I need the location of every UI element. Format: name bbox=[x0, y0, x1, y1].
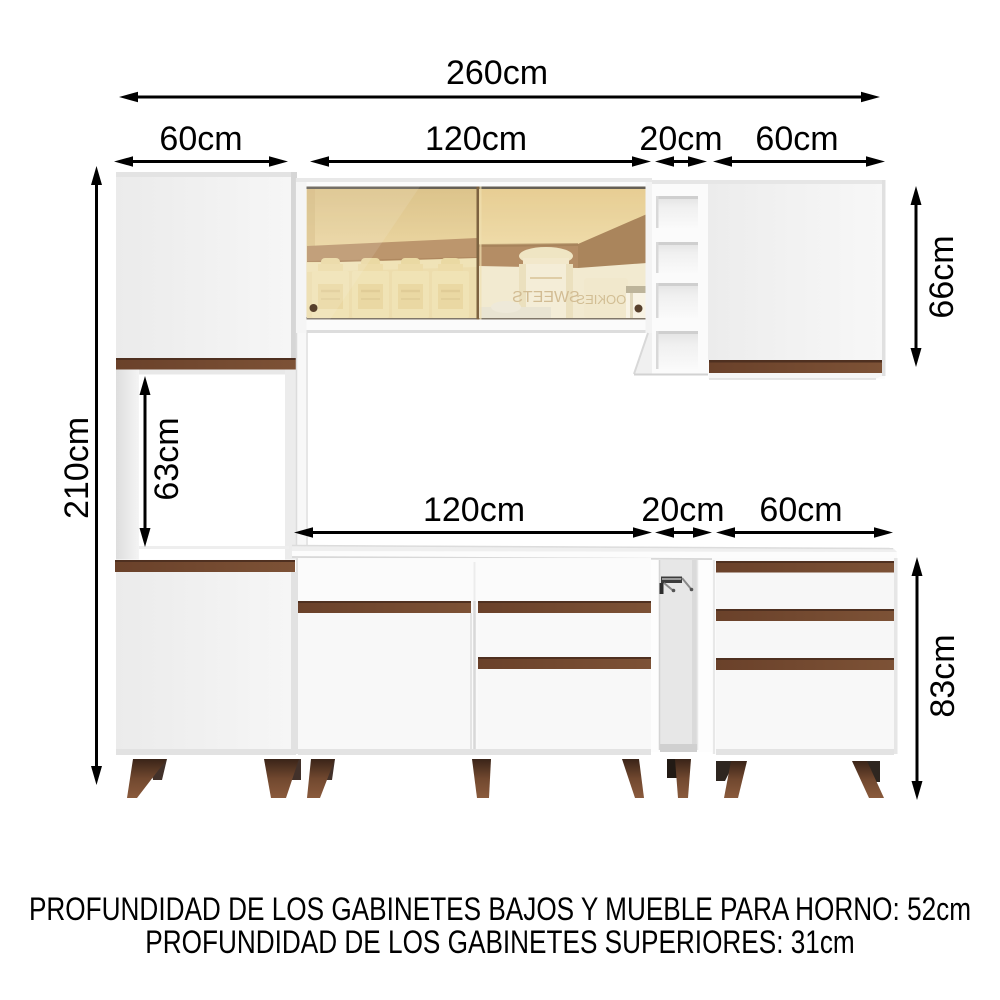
svg-text:120cm: 120cm bbox=[425, 120, 527, 158]
svg-text:210cm: 210cm bbox=[58, 417, 96, 519]
svg-text:PROFUNDIDAD DE LOS GABINETES S: PROFUNDIDAD DE LOS GABINETES SUPERIORES:… bbox=[145, 926, 854, 961]
svg-text:63cm: 63cm bbox=[148, 417, 186, 500]
svg-text:83cm: 83cm bbox=[924, 634, 962, 717]
svg-text:60cm: 60cm bbox=[759, 491, 842, 529]
svg-text:60cm: 60cm bbox=[159, 120, 242, 158]
svg-text:120cm: 120cm bbox=[423, 491, 525, 529]
svg-text:20cm: 20cm bbox=[639, 120, 722, 158]
svg-text:60cm: 60cm bbox=[755, 120, 838, 158]
svg-text:260cm: 260cm bbox=[446, 54, 548, 92]
svg-text:PROFUNDIDAD DE LOS GABINETES B: PROFUNDIDAD DE LOS GABINETES BAJOS Y MUE… bbox=[29, 893, 971, 928]
svg-text:66cm: 66cm bbox=[923, 235, 961, 318]
svg-text:20cm: 20cm bbox=[641, 491, 724, 529]
